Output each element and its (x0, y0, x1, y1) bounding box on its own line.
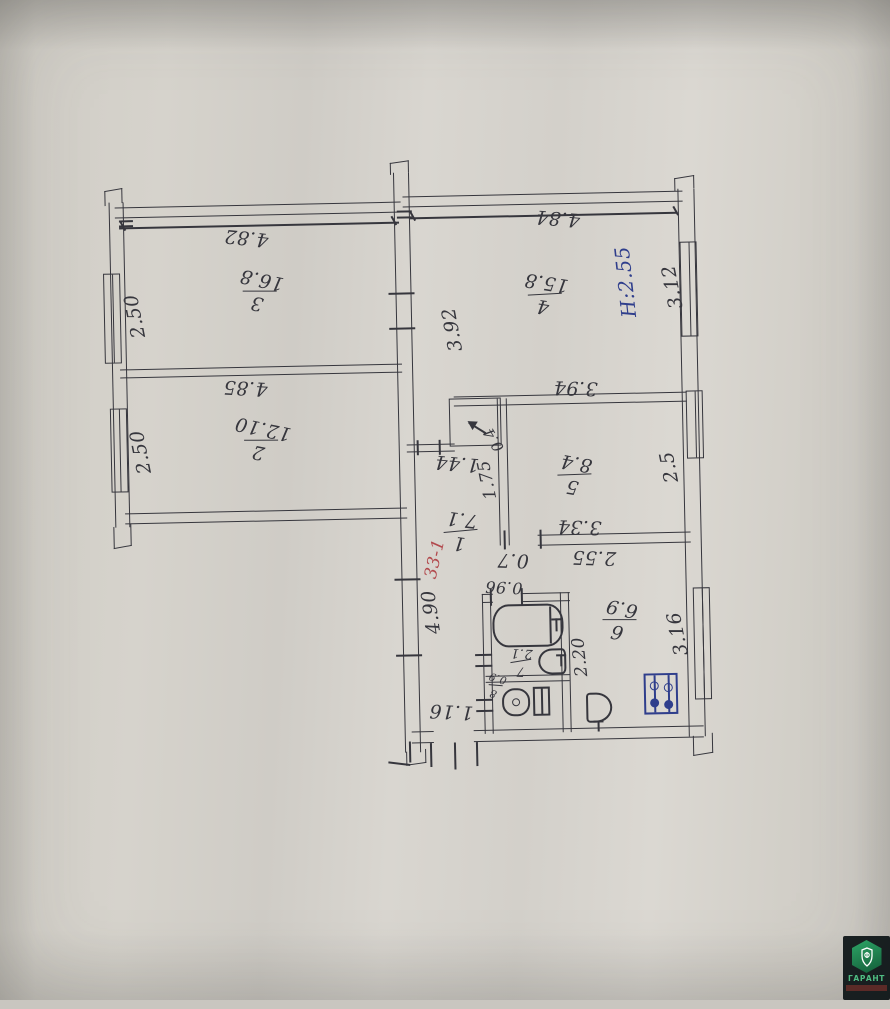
wall-central (393, 172, 421, 752)
dim-entrance-width: 1.16 (429, 700, 474, 724)
room-label-5: 5 8.4 (554, 451, 595, 498)
dim-hall-depth: 1.75 (474, 458, 501, 501)
room-label-4: 4 15.8 (519, 270, 569, 318)
porch-line (476, 742, 478, 766)
wall-left-top-cap (104, 188, 122, 206)
dim-room2-width: 4.85 (223, 376, 268, 400)
hexagon-badge (852, 940, 882, 973)
wall-hatch (119, 220, 133, 222)
dim-room3-width: 4.82 (223, 225, 269, 251)
window-room5 (686, 390, 704, 458)
wall-hatch (119, 225, 133, 227)
watermark-garant: ГАРАНТ (843, 936, 890, 1000)
room-area: 6.9 (604, 596, 639, 620)
washbasin-tap-icon (560, 654, 562, 666)
ceiling-height-note: H:2.55 (610, 245, 642, 319)
watermark-brand-text: ГАРАНТ (843, 974, 890, 983)
floor-plan: 3 16.8 2 12.10 4 15.8 5 8.4 6 6.9 1 7.1 … (0, 0, 890, 1009)
room-label-3: 3 16.8 (233, 266, 285, 316)
door-jamb (539, 530, 541, 549)
room-number: 8 (489, 687, 499, 699)
room-area: 8.4 (559, 452, 593, 475)
bathtub-tap-icon (555, 618, 557, 631)
window-room2 (110, 408, 129, 492)
toilet-bowl-dot (512, 698, 520, 706)
room-area: 2.1 (510, 645, 533, 658)
dim-room5-top: 3.94 (553, 376, 598, 399)
room-label-2: 2 12.10 (228, 414, 292, 467)
room-area: 7.1 (445, 509, 479, 531)
photographed-paper: 3 16.8 2 12.10 4 15.8 5 8.4 6 6.9 1 7.1 … (0, 0, 890, 1000)
wall-bottom-right-block2 (474, 725, 704, 742)
porch-line (454, 743, 456, 770)
dim-bath-door: 0.96 (484, 577, 523, 598)
room-area: 15.8 (523, 270, 570, 295)
room-number: 6 (609, 622, 625, 642)
wall-partition-room2-room3 (120, 364, 402, 379)
dim-corridor-length: 4.90 (417, 589, 445, 636)
room-area: 16.8 (238, 266, 285, 293)
gas-stove-icon (644, 673, 679, 715)
door-jamb (503, 530, 505, 549)
bathtub-icon (492, 603, 564, 647)
kitchen-sink-tap-icon (597, 721, 599, 732)
room-number: 1 (452, 534, 467, 553)
apartment-number-note: 33-1 (421, 537, 449, 581)
door-jamb (475, 654, 492, 656)
door-jamb (476, 710, 493, 712)
room-number: 5 (565, 477, 580, 497)
door-jamb (475, 665, 492, 667)
wall-bottom-left-block (125, 507, 407, 524)
door-jamb (417, 440, 419, 455)
dim-room4-width: 4.84 (535, 205, 581, 231)
door-jamb (476, 699, 493, 701)
watermark-subtext-strip (846, 985, 887, 991)
room-number: 4 (535, 297, 550, 317)
shield-icon (860, 947, 874, 967)
room-number: 2 (250, 442, 266, 462)
dim-bath-depth: 2.20 (568, 636, 592, 678)
wall-left-bottom-cap (113, 524, 131, 549)
room-number: 3 (249, 293, 265, 313)
room-label-7: 7 2.1 (509, 645, 533, 677)
dim-room5-bottom: 3.34 (557, 515, 602, 538)
window-room3 (103, 273, 122, 363)
dim-392: 3.92 (438, 306, 467, 354)
dim-kitchen-width: 2.55 (572, 546, 617, 569)
window-kitchen (693, 587, 712, 699)
wall-bottom-right-block (412, 731, 434, 743)
dim-window-left-bottom: 2.50 (126, 428, 156, 476)
room-area: 0.9 (488, 670, 508, 685)
wall-top-left-block (115, 202, 401, 219)
dim-window-right-mid: 2.5 (655, 449, 683, 484)
kitchen-sink-icon (586, 692, 613, 723)
wall-hatch (397, 210, 412, 212)
dim-kitchen-door: 0.7 (497, 549, 529, 572)
porch-line (430, 743, 432, 767)
room-number: 7 (516, 664, 525, 677)
room-label-6: 6 6.9 (598, 596, 640, 644)
wall-hatch (397, 216, 412, 218)
